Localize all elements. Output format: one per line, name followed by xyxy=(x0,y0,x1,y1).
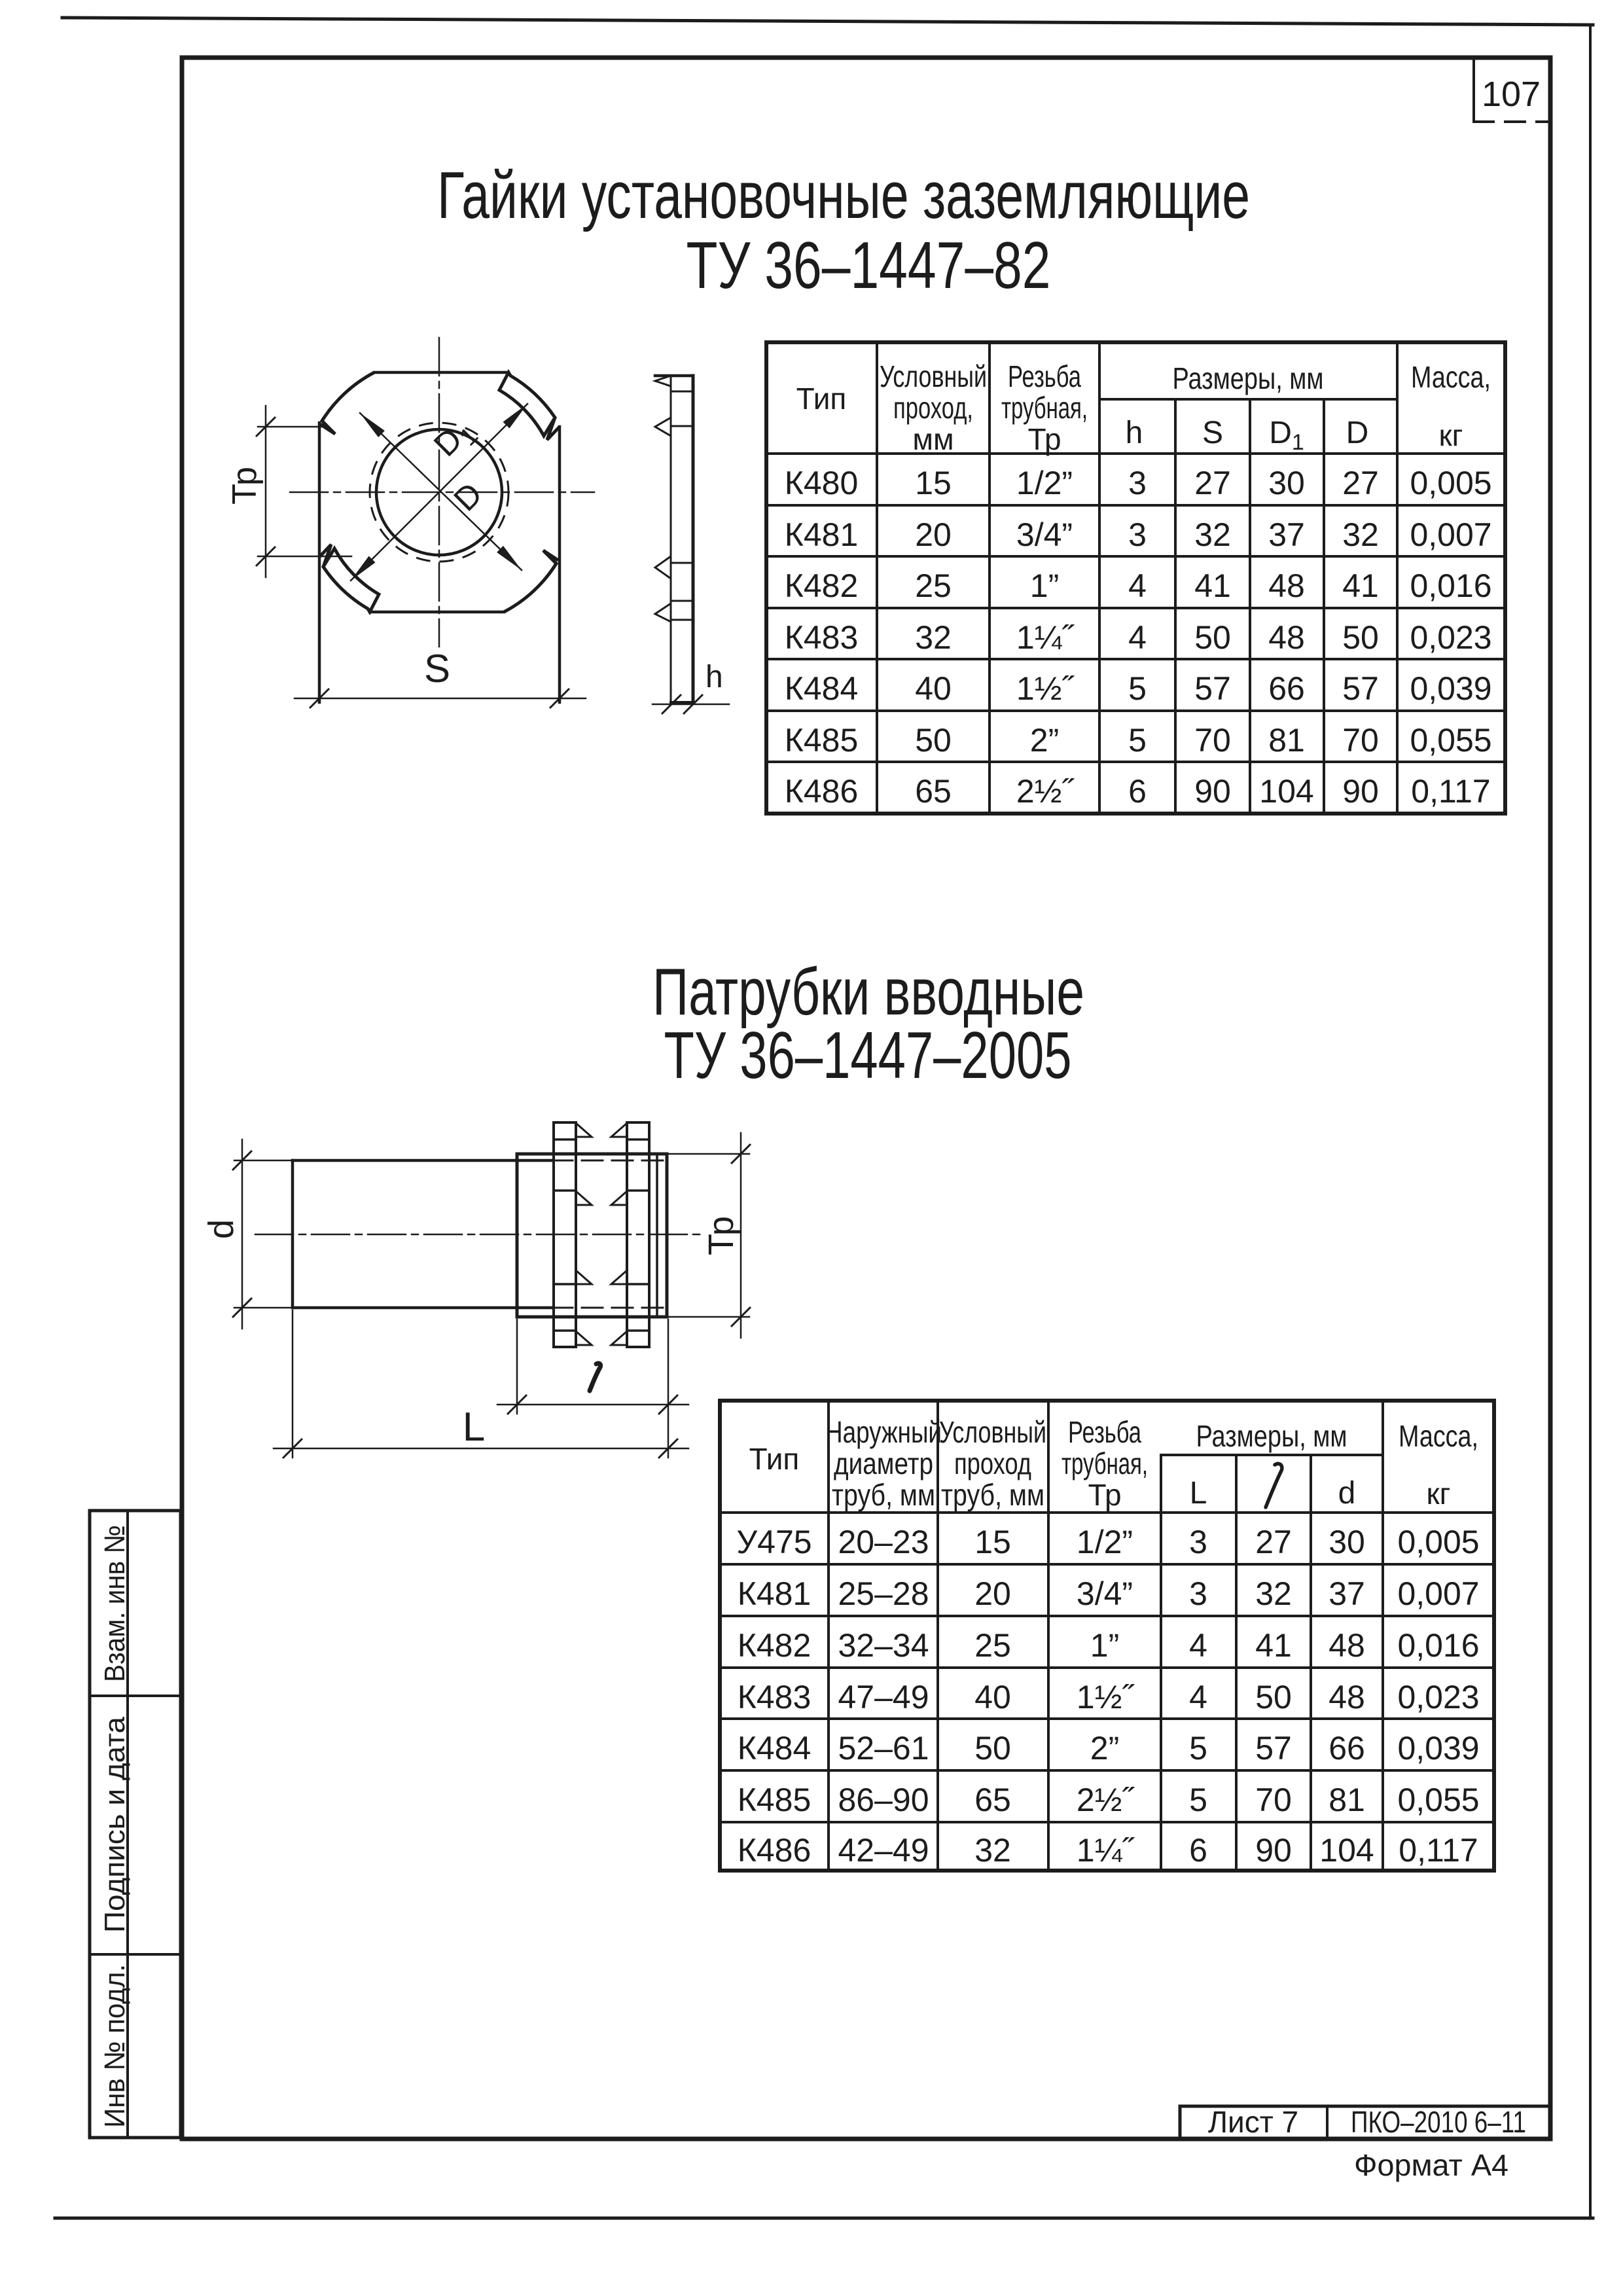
svg-text:кг: кг xyxy=(1427,1477,1451,1511)
svg-text:104: 104 xyxy=(1259,773,1313,810)
svg-text:мм: мм xyxy=(912,422,954,456)
svg-text:37: 37 xyxy=(1329,1575,1365,1612)
svg-text:d: d xyxy=(1338,1476,1356,1511)
svg-text:0,117: 0,117 xyxy=(1411,773,1490,810)
svg-text:0,005: 0,005 xyxy=(1397,1524,1479,1560)
svg-text:0,055: 0,055 xyxy=(1410,722,1491,759)
svg-text:К485: К485 xyxy=(785,722,859,759)
svg-text:трубная,: трубная, xyxy=(1001,391,1088,425)
svg-text:К481: К481 xyxy=(785,516,859,553)
svg-text:4: 4 xyxy=(1189,1679,1207,1715)
svg-text:6: 6 xyxy=(1189,1832,1207,1869)
svg-text:0,007: 0,007 xyxy=(1410,516,1491,553)
svg-text:42–49: 42–49 xyxy=(838,1832,929,1869)
svg-text:15: 15 xyxy=(974,1524,1011,1560)
svg-text:L: L xyxy=(463,1405,485,1450)
svg-text:32: 32 xyxy=(1255,1575,1292,1612)
svg-text:40: 40 xyxy=(915,670,952,707)
svg-text:27: 27 xyxy=(1255,1524,1292,1560)
svg-text:Размеры, мм: Размеры, мм xyxy=(1196,1419,1347,1453)
svg-text:70: 70 xyxy=(1194,722,1231,759)
svg-text:32: 32 xyxy=(915,619,952,656)
svg-text:Наружный: Наружный xyxy=(825,1415,942,1449)
svg-text:107: 107 xyxy=(1482,75,1541,114)
svg-text:57: 57 xyxy=(1342,670,1379,707)
svg-text:0,039: 0,039 xyxy=(1397,1730,1479,1767)
svg-text:30: 30 xyxy=(1268,465,1305,501)
svg-text:1¼˝: 1¼˝ xyxy=(1077,1832,1135,1869)
svg-text:86–90: 86–90 xyxy=(838,1782,929,1818)
svg-text:Размеры, мм: Размеры, мм xyxy=(1173,361,1324,395)
svg-text:диаметр: диаметр xyxy=(834,1446,933,1480)
svg-text:ПКО–2010 6–11: ПКО–2010 6–11 xyxy=(1351,2105,1526,2139)
svg-text:1½˝: 1½˝ xyxy=(1016,670,1075,707)
svg-text:2½˝: 2½˝ xyxy=(1077,1782,1135,1818)
svg-text:Масса,: Масса, xyxy=(1399,1419,1478,1453)
svg-text:6: 6 xyxy=(1128,773,1147,810)
svg-text:5: 5 xyxy=(1189,1782,1207,1818)
svg-text:d: d xyxy=(202,1219,241,1239)
svg-text:4: 4 xyxy=(1128,619,1147,656)
svg-text:41: 41 xyxy=(1342,567,1379,604)
svg-text:Тип: Тип xyxy=(796,382,847,416)
svg-text:Тр: Тр xyxy=(226,467,264,505)
svg-text:48: 48 xyxy=(1329,1627,1365,1664)
svg-text:104: 104 xyxy=(1319,1832,1374,1869)
svg-text:50: 50 xyxy=(1194,619,1231,656)
svg-text:0,117: 0,117 xyxy=(1399,1832,1478,1869)
svg-text:Патрубки вводные: Патрубки вводные xyxy=(652,956,1084,1029)
svg-text:3/4”: 3/4” xyxy=(1077,1575,1133,1612)
svg-text:D: D xyxy=(1346,416,1369,450)
svg-text:К485: К485 xyxy=(738,1782,811,1818)
svg-text:90: 90 xyxy=(1194,773,1231,810)
svg-text:0,023: 0,023 xyxy=(1397,1679,1479,1715)
svg-text:0,055: 0,055 xyxy=(1397,1782,1479,1818)
svg-text:S: S xyxy=(1202,416,1223,450)
svg-text:32: 32 xyxy=(974,1832,1011,1869)
svg-text:52–61: 52–61 xyxy=(838,1730,929,1767)
svg-text:32: 32 xyxy=(1194,516,1231,553)
svg-text:S: S xyxy=(424,647,450,691)
svg-text:Масса,: Масса, xyxy=(1411,360,1491,394)
svg-text:0,016: 0,016 xyxy=(1410,567,1491,604)
svg-text:К480: К480 xyxy=(785,465,859,501)
svg-text:20–23: 20–23 xyxy=(838,1524,929,1560)
svg-text:0,007: 0,007 xyxy=(1397,1575,1479,1612)
svg-text:Взам. инв №: Взам. инв № xyxy=(99,1525,131,1682)
svg-text:81: 81 xyxy=(1268,722,1305,759)
svg-text:66: 66 xyxy=(1268,670,1305,707)
svg-text:1/2”: 1/2” xyxy=(1016,465,1073,501)
svg-text:30: 30 xyxy=(1329,1524,1365,1560)
svg-text:Условный: Условный xyxy=(939,1415,1046,1449)
svg-text:Тр: Тр xyxy=(1027,422,1061,456)
svg-text:h: h xyxy=(1126,416,1143,450)
svg-text:25: 25 xyxy=(974,1627,1011,1664)
svg-text:0,023: 0,023 xyxy=(1410,619,1491,656)
svg-text:48: 48 xyxy=(1268,567,1305,604)
svg-text:ТУ 36–1447–82: ТУ 36–1447–82 xyxy=(687,229,1051,302)
svg-text:5: 5 xyxy=(1128,722,1147,759)
svg-text:Гайки установочные заземляющие: Гайки установочные заземляющие xyxy=(437,159,1250,232)
svg-text:1¼˝: 1¼˝ xyxy=(1016,619,1075,656)
svg-text:4: 4 xyxy=(1189,1627,1207,1664)
svg-text:48: 48 xyxy=(1329,1679,1365,1715)
svg-text:труб, мм: труб, мм xyxy=(941,1478,1044,1512)
svg-text:41: 41 xyxy=(1255,1627,1292,1664)
svg-text:К484: К484 xyxy=(738,1730,811,1767)
svg-text:32: 32 xyxy=(1342,516,1379,553)
svg-text:Резьба: Резьба xyxy=(1068,1415,1141,1449)
svg-text:0,039: 0,039 xyxy=(1410,670,1491,707)
svg-text:Подпись и дата: Подпись и дата xyxy=(99,1716,131,1933)
svg-text:40: 40 xyxy=(974,1679,1011,1715)
svg-text:К486: К486 xyxy=(738,1832,811,1869)
svg-text:50: 50 xyxy=(974,1730,1011,1767)
svg-text:Тр: Тр xyxy=(702,1216,741,1255)
svg-text:Тр: Тр xyxy=(1088,1478,1121,1512)
svg-text:3: 3 xyxy=(1189,1524,1207,1560)
svg-text:кг: кг xyxy=(1439,418,1463,452)
svg-text:У475: У475 xyxy=(736,1524,811,1560)
svg-text:Тип: Тип xyxy=(749,1442,800,1476)
svg-text:3: 3 xyxy=(1128,465,1147,501)
svg-text:3: 3 xyxy=(1128,516,1147,553)
svg-text:20: 20 xyxy=(915,516,952,553)
svg-text:27: 27 xyxy=(1194,465,1231,501)
svg-text:25–28: 25–28 xyxy=(838,1575,929,1612)
svg-text:2½˝: 2½˝ xyxy=(1016,773,1075,810)
svg-text:4: 4 xyxy=(1128,567,1147,604)
svg-text:66: 66 xyxy=(1329,1730,1365,1767)
svg-text:Формат А4: Формат А4 xyxy=(1354,2148,1508,2182)
svg-text:5: 5 xyxy=(1189,1730,1207,1767)
svg-text:37: 37 xyxy=(1268,516,1305,553)
svg-text:5: 5 xyxy=(1128,670,1147,707)
svg-text:41: 41 xyxy=(1194,567,1231,604)
svg-text:проход,: проход, xyxy=(893,391,973,425)
svg-text:3: 3 xyxy=(1189,1575,1207,1612)
svg-text:К484: К484 xyxy=(785,670,859,707)
svg-text:1”: 1” xyxy=(1030,567,1059,604)
svg-text:проход: проход xyxy=(954,1446,1031,1480)
svg-text:К483: К483 xyxy=(785,619,859,656)
svg-text:90: 90 xyxy=(1342,773,1379,810)
svg-text:47–49: 47–49 xyxy=(838,1679,929,1715)
svg-text:50: 50 xyxy=(915,722,952,759)
svg-text:81: 81 xyxy=(1329,1782,1365,1818)
svg-text:48: 48 xyxy=(1268,619,1305,656)
svg-text:25: 25 xyxy=(915,567,952,604)
svg-text:1/2”: 1/2” xyxy=(1077,1524,1133,1560)
svg-text:70: 70 xyxy=(1342,722,1379,759)
svg-text:К483: К483 xyxy=(738,1679,811,1715)
svg-text:2”: 2” xyxy=(1090,1730,1119,1767)
svg-text:К481: К481 xyxy=(738,1575,811,1612)
svg-text:Инв № подл.: Инв № подл. xyxy=(99,1964,131,2128)
svg-text:65: 65 xyxy=(915,773,952,810)
svg-text:Лист 7: Лист 7 xyxy=(1208,2105,1298,2139)
svg-text:трубная,: трубная, xyxy=(1061,1446,1148,1480)
svg-text:Условный: Условный xyxy=(880,359,987,393)
svg-text:h: h xyxy=(705,660,723,694)
svg-text:70: 70 xyxy=(1255,1782,1292,1818)
svg-text:20: 20 xyxy=(974,1575,1011,1612)
svg-text:труб, мм: труб, мм xyxy=(832,1478,935,1512)
svg-text:К482: К482 xyxy=(738,1627,811,1664)
svg-text:0,016: 0,016 xyxy=(1397,1627,1479,1664)
svg-text:15: 15 xyxy=(915,465,952,501)
svg-text:К482: К482 xyxy=(785,567,859,604)
svg-text:57: 57 xyxy=(1194,670,1231,707)
svg-text:2”: 2” xyxy=(1030,722,1059,759)
svg-text:65: 65 xyxy=(974,1782,1011,1818)
svg-text:32–34: 32–34 xyxy=(838,1627,929,1664)
svg-text:50: 50 xyxy=(1342,619,1379,656)
svg-text:ТУ 36–1447–2005: ТУ 36–1447–2005 xyxy=(664,1019,1072,1092)
svg-text:27: 27 xyxy=(1342,465,1379,501)
svg-text:L: L xyxy=(1190,1476,1207,1511)
svg-text:90: 90 xyxy=(1255,1832,1292,1869)
svg-text:1½˝: 1½˝ xyxy=(1077,1679,1135,1715)
svg-text:57: 57 xyxy=(1255,1730,1292,1767)
svg-text:50: 50 xyxy=(1255,1679,1292,1715)
svg-text:1”: 1” xyxy=(1090,1627,1119,1664)
svg-text:К486: К486 xyxy=(785,773,859,810)
svg-text:3/4”: 3/4” xyxy=(1016,516,1073,553)
svg-text:0,005: 0,005 xyxy=(1410,465,1491,501)
svg-text:Резьба: Резьба xyxy=(1008,359,1081,393)
